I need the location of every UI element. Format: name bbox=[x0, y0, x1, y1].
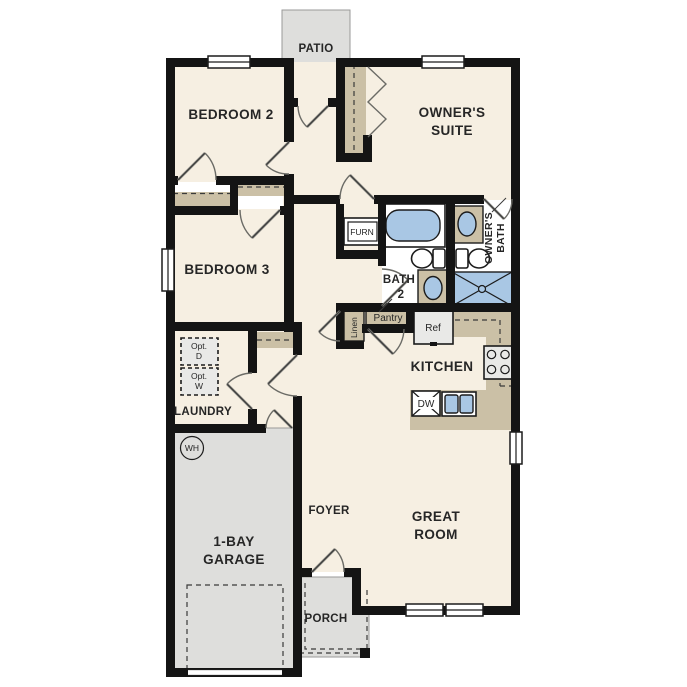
window bbox=[406, 604, 443, 616]
window bbox=[208, 56, 250, 68]
room-label-owners-suite-2: SUITE bbox=[431, 123, 473, 138]
room-label-garage-2: GARAGE bbox=[203, 552, 265, 567]
garage-floor bbox=[171, 428, 298, 673]
room-label-kitchen: KITCHEN bbox=[411, 359, 474, 374]
fixture-label-ref: Ref bbox=[425, 323, 441, 334]
room-label-great-room-1: GREAT bbox=[412, 509, 461, 524]
bath2-sink bbox=[424, 277, 442, 300]
window bbox=[162, 249, 174, 291]
fixture-label-opt-washer-1: Opt. bbox=[191, 371, 207, 381]
shower bbox=[452, 272, 512, 306]
fixture-label-pantry: Pantry bbox=[374, 313, 403, 324]
window bbox=[446, 604, 483, 616]
window bbox=[510, 432, 522, 464]
room-label-great-room-2: ROOM bbox=[414, 527, 458, 542]
owners-closet-shelf bbox=[344, 62, 366, 153]
room-label-patio: PATIO bbox=[299, 43, 334, 55]
owners-sink bbox=[458, 212, 476, 236]
fixture-label-wh: WH bbox=[185, 443, 199, 453]
floor-plan: PATIO BEDROOM 2 OWNER'S SUITE BEDROOM 3 … bbox=[0, 0, 687, 687]
toilet-bath2 bbox=[412, 249, 446, 268]
room-label-garage-1: 1-BAY bbox=[213, 534, 254, 549]
floor-plan-drawing: PATIO BEDROOM 2 OWNER'S SUITE BEDROOM 3 … bbox=[0, 0, 687, 687]
room-label-foyer: FOYER bbox=[308, 505, 350, 517]
kitchen-counter-top bbox=[453, 311, 511, 337]
fixture-label-opt-washer-2: W bbox=[195, 381, 203, 391]
window bbox=[422, 56, 464, 68]
range-unit bbox=[484, 346, 512, 379]
garage-door-opening bbox=[188, 669, 282, 676]
room-label-owners-bath-2: BATH bbox=[495, 223, 507, 253]
room-label-bath2-1: BATH bbox=[383, 274, 415, 286]
fixture-label-furnace: FURN bbox=[350, 227, 374, 237]
kitchen-sink bbox=[442, 392, 476, 416]
porch-post bbox=[360, 648, 370, 658]
room-label-laundry: LAUNDRY bbox=[174, 406, 232, 418]
fixture-label-opt-dryer-1: Opt. bbox=[191, 341, 207, 351]
fixture-label-dw: DW bbox=[418, 399, 435, 410]
bathtub bbox=[386, 210, 440, 241]
fixture-label-linen: Linen bbox=[349, 317, 359, 338]
room-label-bath2-2: 2 bbox=[398, 289, 405, 301]
fixture-label-opt-dryer-2: D bbox=[196, 351, 202, 361]
room-label-owners-suite-1: OWNER'S bbox=[419, 105, 486, 120]
room-label-bedroom2: BEDROOM 2 bbox=[188, 107, 273, 122]
room-label-owners-bath-1: OWNER'S bbox=[483, 212, 495, 264]
room-label-porch: PORCH bbox=[304, 613, 347, 625]
room-label-bedroom3: BEDROOM 3 bbox=[184, 262, 269, 277]
